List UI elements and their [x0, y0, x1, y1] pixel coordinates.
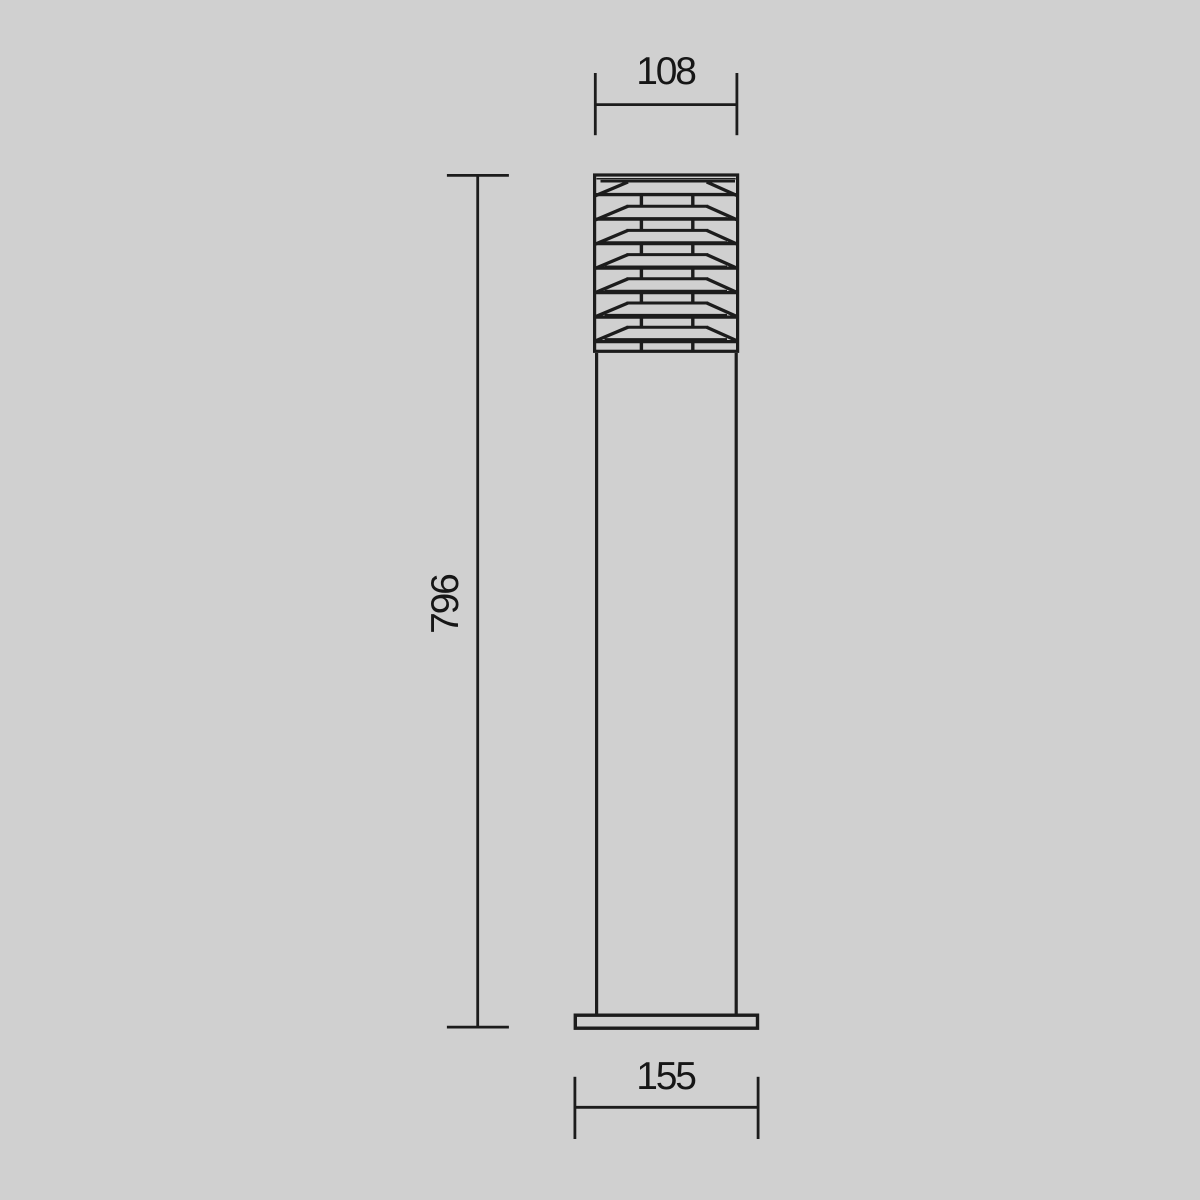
- svg-text:796: 796: [424, 575, 467, 634]
- svg-text:108: 108: [636, 50, 695, 93]
- svg-text:155: 155: [636, 1055, 696, 1098]
